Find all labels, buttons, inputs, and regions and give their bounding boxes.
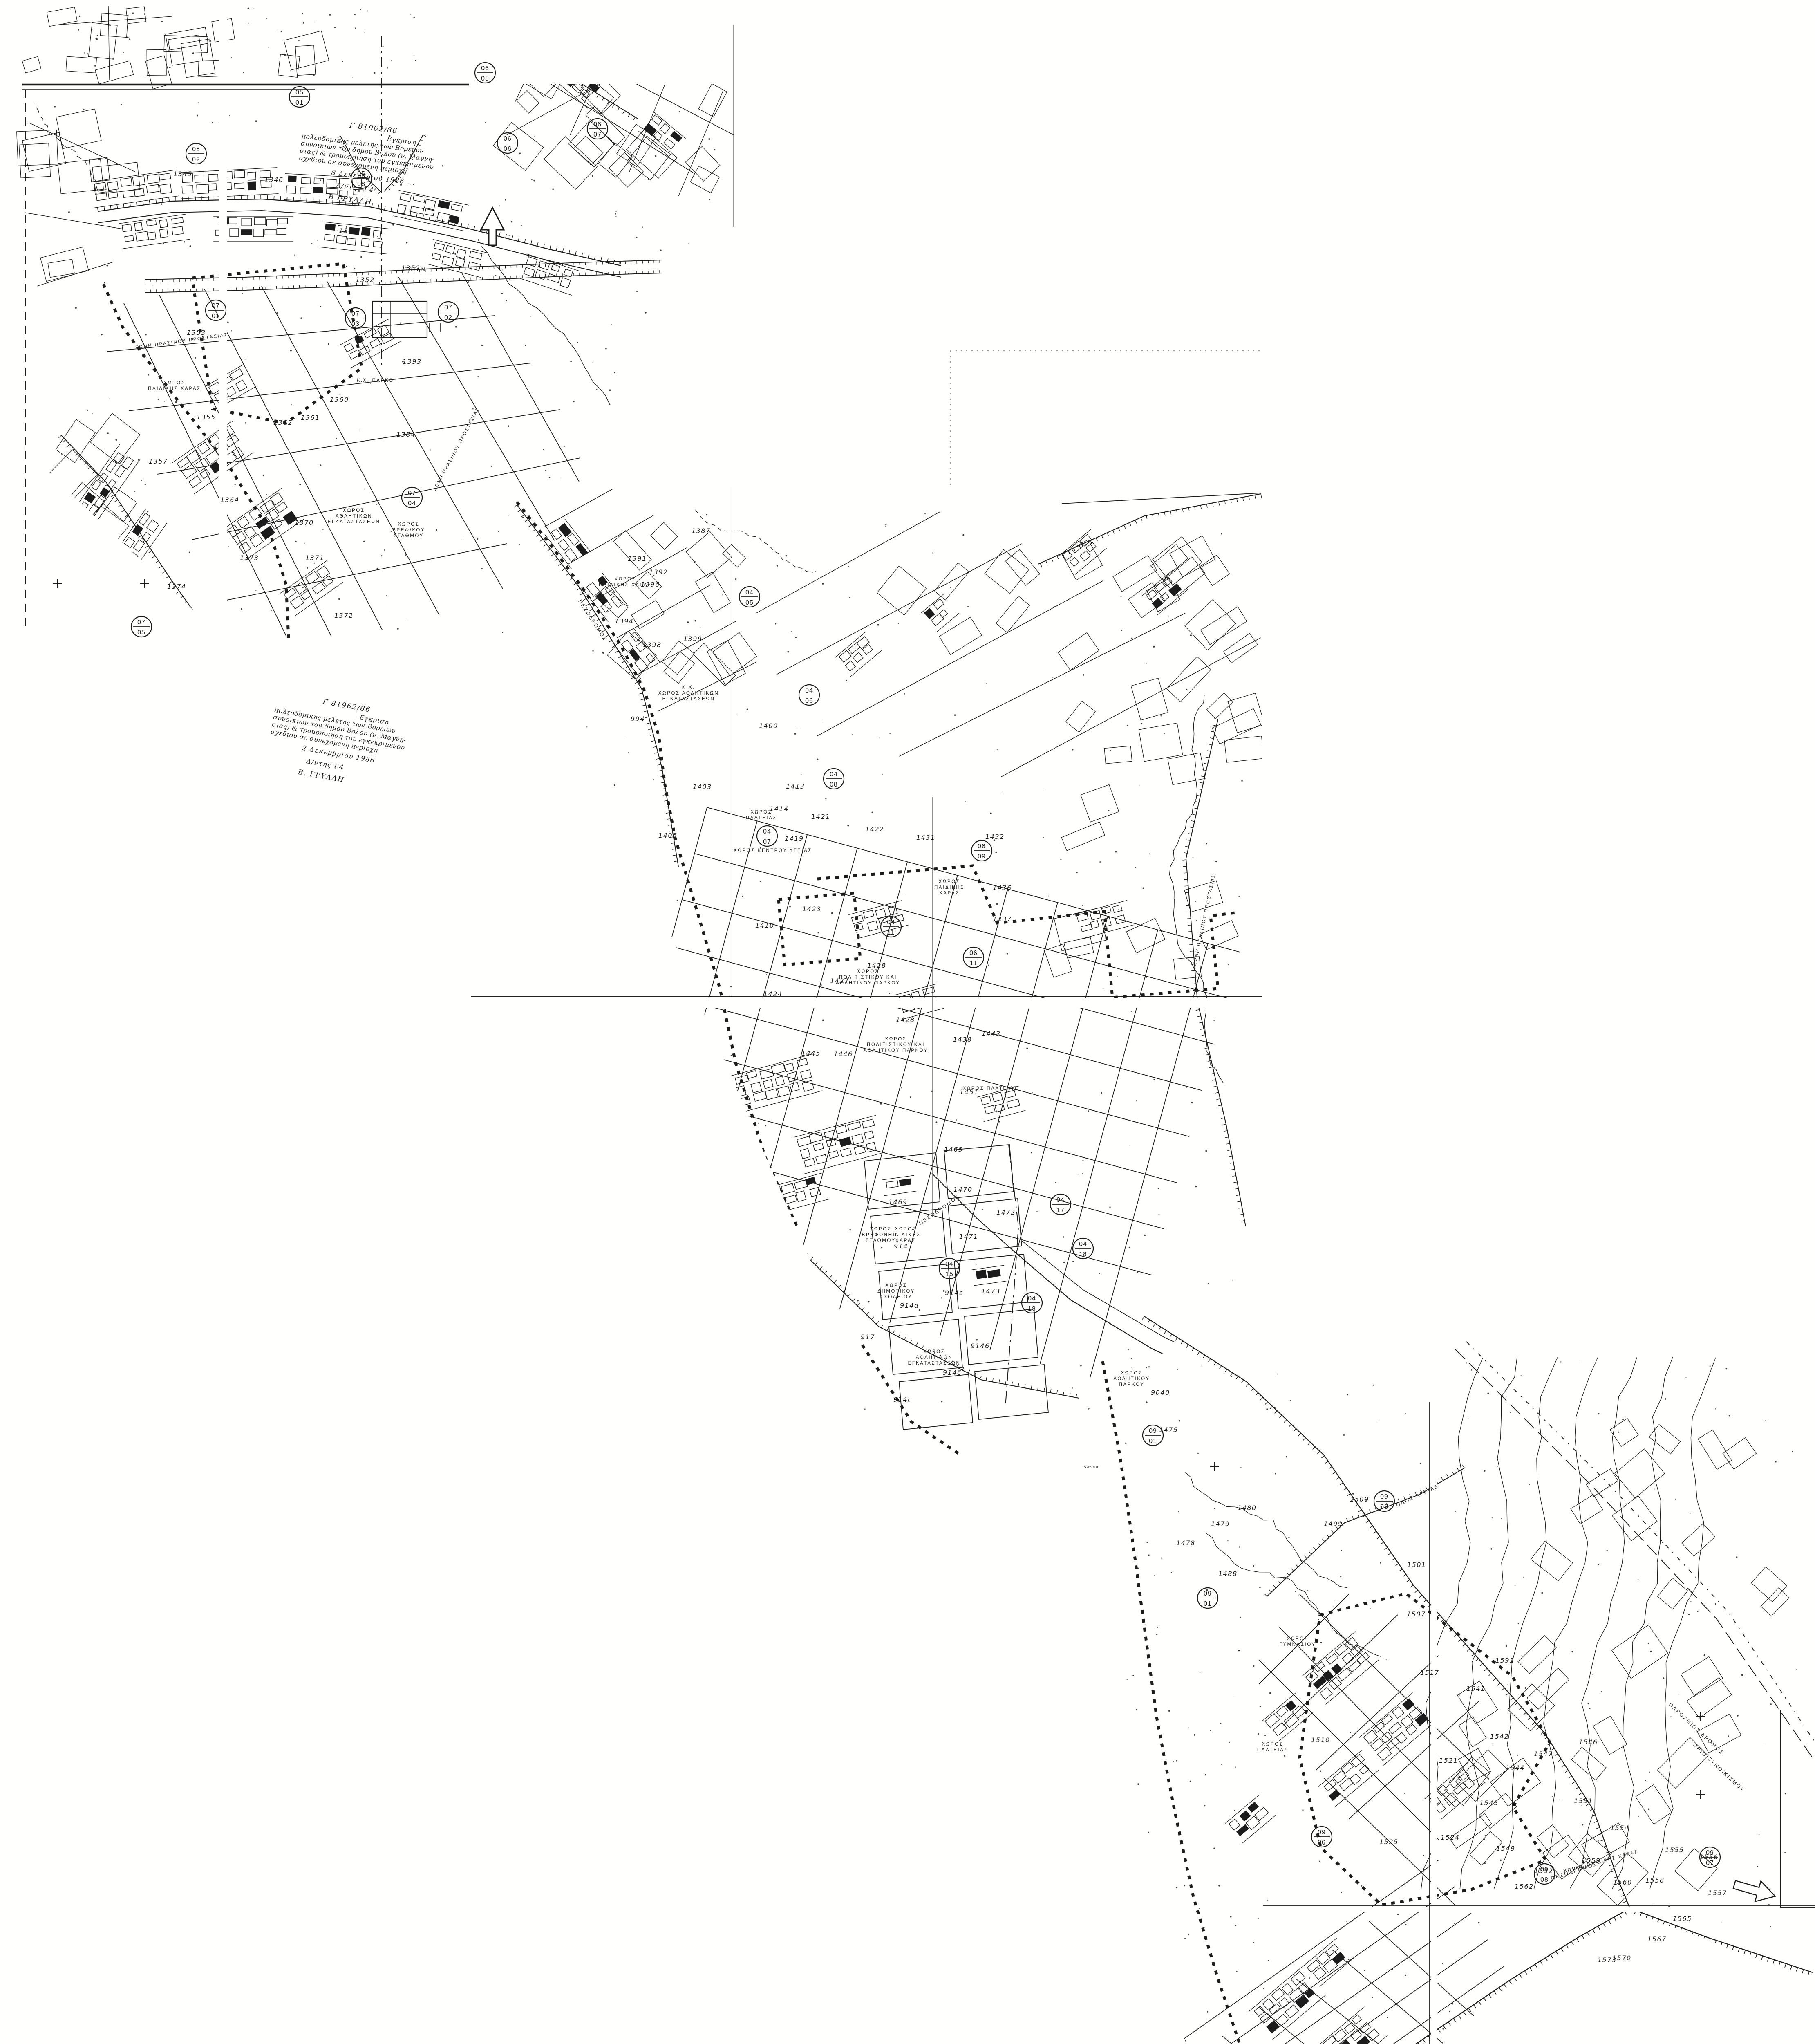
site-designation-label: ΧΩΡΟΣ (751, 810, 772, 815)
sheet-number-top: 07 (444, 304, 452, 311)
block-number-label: 1549 (1496, 1845, 1515, 1852)
sheet-number-top: 09 (1706, 1849, 1714, 1856)
site-designation-label: ΕΓΚΑΤΑΣΤΑΣΕΩΝ (662, 697, 715, 702)
map-cluster-bottom (1103, 1316, 1815, 2044)
site-designation-label: ΠΛΑΤΕΙΑΣ (746, 816, 777, 820)
sheet-number-bottom: 05 (745, 599, 754, 606)
building-block-patch (1303, 1938, 1354, 1986)
north-arrow-icon (481, 208, 504, 245)
block-number-label: 1400 (759, 722, 778, 730)
building-block-patch (835, 632, 882, 677)
block-number-label: 1405 (658, 831, 678, 839)
site-designation-label: ΧΩΡΟΣ (939, 879, 960, 884)
handwritten-parcel-number: 914ζ (943, 1369, 961, 1376)
handwritten-parcel-number: 914ι (893, 1396, 911, 1403)
site-designation-label: ΧΩΡΟΣ (1262, 1742, 1284, 1747)
sheet-index-circle: 0908 (1534, 1864, 1555, 1884)
site-designation-label: ΧΩΡΟΣ (1287, 1636, 1309, 1641)
block-number-label: 1544 (1506, 1764, 1525, 1772)
block-number-label: 1470 (953, 1186, 973, 1193)
block-number-label: 1414 (770, 805, 789, 813)
site-designation-label: ΧΩΡΟΣ (1121, 1371, 1143, 1376)
block-number-label: 1567 (1647, 1935, 1667, 1943)
sheet-index-circle: 0408 (824, 769, 844, 789)
site-designation-label: Κ.Χ. (682, 685, 695, 690)
block-number-label: 1428 (867, 961, 886, 969)
site-designation-label: ΒΡΕΦΟΝΗΠ. (862, 1233, 900, 1237)
sheet-number-top: 06 (504, 135, 512, 142)
building-block-patch (921, 594, 959, 632)
block-number-label: 1394 (615, 617, 634, 625)
building-block-patch (545, 519, 591, 569)
sheet-seam-lines (22, 0, 1815, 2044)
sheet-index-circle: 0705 (131, 616, 152, 637)
sheet-index-circle: 0607 (587, 119, 608, 139)
building-block-patch (1249, 1967, 1326, 2040)
block-number-label: 1471 (959, 1233, 978, 1240)
sheet-number-top: 09 (1149, 1428, 1157, 1434)
sheet-number-top: 04 (830, 771, 838, 778)
block-number-label: 1431 (916, 834, 935, 841)
site-designation-label: ΠΑΙΔΙΚΗΣ ΧΑΡΑΣ (599, 583, 652, 587)
block-number-label: 1423 (802, 905, 821, 913)
sheet-seam-gap (1431, 1402, 1437, 2044)
handwritten-parcel-number: 9146 (971, 1342, 990, 1350)
site-designation-label: ΧΑΡΑΣ (939, 891, 960, 896)
sheet-index-circle: 0903 (1374, 1491, 1394, 1511)
map-cluster-topleft (17, 11, 734, 638)
site-designation-label: ΕΓΚΑΤΑΣΤΑΣΕΩΝ (328, 520, 380, 524)
block-number-label: 1472 (996, 1208, 1016, 1216)
building-block-patch (107, 509, 167, 579)
block-number-label: 1419 (785, 835, 804, 843)
map-cluster-middle (514, 486, 1404, 1488)
sheet-index-circle: 0418 (1073, 1238, 1093, 1259)
sheet-index-circle: 0703 (345, 308, 366, 328)
block-number-label: 1393 (403, 358, 422, 365)
block-number-label: 1551 (1574, 1797, 1593, 1805)
block-number-label: 1371 (305, 554, 325, 562)
block-number-label: 1373 (240, 554, 259, 562)
site-designation-label: ΧΩΡΟΣ (885, 1037, 907, 1042)
building-block-patch (1318, 1750, 1379, 1806)
sheet-number-bottom: 07 (1706, 1860, 1714, 1867)
sheet-number-top: 07 (212, 303, 220, 309)
block-number-label: 1360 (330, 396, 349, 403)
block-number-label: 1370 (295, 519, 314, 527)
building-block-patch (731, 1054, 823, 1113)
sheet-number-bottom: 06 (504, 146, 512, 152)
site-designation-label: ΠΟΛΙΤΙΣΤΙΚΟΥ ΚΑΙ (839, 975, 897, 980)
sheet-number-top: 04 (945, 1261, 953, 1268)
sheet-index-circle: 0906 (1311, 1827, 1332, 1847)
building-block-patch (1262, 1692, 1313, 1741)
block-number-label: 1521 (1439, 1757, 1458, 1764)
site-designation-label: ΑΘΛΗΤΙΚΟΥ ΠΑΡΚΟΥ (836, 981, 900, 986)
site-designation-label: ΧΩΡΟΣ (615, 577, 636, 582)
site-designation-label: ΧΩΡΟΣ (886, 1283, 907, 1288)
block-number-label: 1392 (649, 568, 668, 576)
block-number-label: 1391 (628, 555, 647, 563)
sheet-number-top: 05 (192, 146, 200, 153)
block-number-label: 1524 (1441, 1833, 1460, 1841)
sheet-index-circle: 0901 (1197, 1588, 1218, 1608)
block-number-label: 1374 (167, 583, 186, 590)
sheet-number-bottom: 08 (1540, 1876, 1549, 1883)
site-designation-label: ΑΘΛΗΤΙΚΟΥ (1113, 1376, 1150, 1381)
sheet-number-bottom: 04 (408, 500, 416, 507)
site-designation-label: ΣΤΑΘΜΟΥ (866, 1238, 896, 1243)
block-number-label: 1345 (173, 170, 192, 178)
building-block-patch (848, 900, 909, 939)
site-designation-label: ΒΡΕΦ/ΚΟΥ (392, 528, 425, 533)
approval-note-top: Γ 81962/86Εγκρισηπολεοδομικης μελετης τω… (294, 116, 438, 213)
block-number-label: 1355 (197, 413, 216, 421)
sheet-number-bottom: 11 (887, 929, 895, 936)
block-number-label: 1517 (1420, 1669, 1439, 1676)
block-number-label: 1443 (982, 1030, 1001, 1038)
sheet-number-bottom: 01 (212, 313, 220, 320)
sheet-number-bottom: 17 (1056, 1207, 1065, 1214)
sheet-index-circle: 0406 (799, 685, 819, 705)
block-number-label: 1372 (334, 612, 354, 619)
sheet-number-bottom: 06 (1318, 1839, 1326, 1846)
sheet-index-circle: 0606 (497, 133, 518, 153)
block-number-label: 1399 (683, 635, 703, 643)
block-number-label: 1554 (1610, 1824, 1629, 1832)
sheet-index-circle: 0501 (289, 87, 310, 107)
sheet-number-top: 06 (969, 950, 978, 957)
sheet-number-top: 09 (1380, 1493, 1388, 1500)
approval-reference: Γ 81962/86 (349, 121, 398, 135)
site-designation-label: ΧΩΡΟΣ (164, 381, 186, 385)
building-block-patch (614, 629, 661, 679)
road-continuation-arrow-icon (1732, 1874, 1778, 1907)
block-number-label: 1545 (1479, 1799, 1499, 1807)
sheet-index-circle: 0405 (739, 587, 760, 607)
site-designation-label: ΣΤΑΘΜΟΥ (394, 533, 424, 538)
block-number-label: 1384 (396, 430, 416, 438)
block-number-label: 1547 (1534, 1750, 1553, 1758)
site-designation-label: ΧΩΡΟΣ (857, 969, 879, 974)
sheet-number-bottom: 02 (192, 156, 200, 163)
building-block-patch (765, 1173, 829, 1214)
site-designation-label: ΠΟΛΙΤΙΣΤΙΚΟΥ ΚΑΙ (867, 1042, 925, 1047)
block-number-label: 1469 (888, 1198, 908, 1206)
site-designation-label: ΠΑΙΔΙΚΗΣ ΧΑΡΑΣ (148, 386, 201, 391)
block-number-label: 1364 (220, 496, 239, 504)
block-number-label: 1555 (1665, 1846, 1684, 1854)
building-block-patch (557, 63, 604, 108)
sheet-index-circle: 0907 (1700, 1847, 1720, 1867)
sheet-number-top: 06 (481, 65, 489, 72)
block-number-label: 1410 (755, 921, 774, 929)
sheet-number-top: 04 (1079, 1241, 1087, 1248)
block-number-label: 1478 (1176, 1539, 1195, 1547)
site-designation-label: ΧΩΡΟΣ (895, 1227, 917, 1232)
site-designation-label: Κ.Χ. ΠΑΡΚΟ (357, 378, 394, 383)
sheet-number-top: 09 (1318, 1829, 1326, 1836)
block-number-label: 1525 (1379, 1838, 1399, 1846)
block-number-label: 1465 (944, 1145, 963, 1153)
block-number-label: 1362 (273, 419, 293, 426)
block-number-label: 1398 (642, 641, 662, 649)
sheet-index-circle: 0417 (1050, 1194, 1071, 1215)
sheet-number-bottom: 07 (763, 838, 771, 845)
sheet-number-bottom: 01 (1204, 1600, 1212, 1607)
block-number-label: 1501 (1407, 1561, 1426, 1569)
sheet-number-top: 04 (1056, 1197, 1065, 1204)
block-number-label: 1445 (801, 1049, 821, 1057)
block-number-label: 1499 (1324, 1520, 1343, 1528)
sheet-number-bottom: 08 (830, 781, 838, 788)
site-designation-label: ΔΗΜΟΤΙΚΟΥ (877, 1289, 915, 1294)
block-number-label: 1562 (1515, 1883, 1534, 1890)
sheet-number-bottom: 11 (970, 960, 978, 967)
approval-note-mid: Γ 81962/86Εγκρισηπολεοδομικης μελετης τω… (264, 690, 411, 793)
block-number-label: 1403 (693, 783, 712, 791)
sheet-seam-gap (219, 0, 227, 638)
sheet-number-top: 06 (593, 121, 602, 128)
handwritten-parcel-number: 914α (900, 1302, 919, 1309)
block-number-label: 1347 (339, 227, 358, 235)
site-designation-label: ΕΓΚΑΤΑΣΤΑΣΕΩΝ (908, 1361, 961, 1366)
scanned-map-page: 1345134613471352135213531355135713601361… (0, 0, 1815, 2044)
block-number-label: 1565 (1673, 1915, 1692, 1923)
site-designation-label: ΠΑΡΚΟΥ (1119, 1382, 1145, 1387)
grid-coordinate-label: 595300 (1084, 1465, 1100, 1470)
site-designation-label: ΧΩΡΟΣ (924, 1349, 945, 1354)
site-designation-label: ΧΩΡΟΣ ΠΛΑΤΕΙΑΣ (962, 1086, 1018, 1091)
block-number-label: 1352 (356, 276, 375, 284)
sheet-number-top: 05 (295, 89, 304, 96)
site-designation-label: ΧΩΡΟΣ (870, 1227, 892, 1232)
site-designation-label: ΖΩΝΗ ΠΡΑΣΙΝΟΥ ΠΡΟΣΤΑΣΙΑΣ (432, 406, 481, 491)
sheet-index-circle: 0418 (1022, 1293, 1042, 1313)
sheet-number-bottom: 15 (945, 1271, 953, 1278)
block-number-label: 1473 (981, 1287, 1000, 1295)
sheet-number-top: 04 (763, 828, 771, 835)
sheet-number-bottom: 07 (593, 131, 602, 138)
approval-signature: Β. ΓΡΥΛΛΗ (297, 768, 345, 784)
site-designation-label: ΑΘΛΗΤΙΚΩΝ (916, 1355, 953, 1360)
sheet-seam-gap (734, 25, 740, 491)
sheet-index-circle: 0704 (402, 487, 422, 508)
block-number-label: 1421 (811, 813, 830, 820)
block-number-label: 1387 (692, 527, 711, 535)
block-number-label: 1438 (953, 1035, 972, 1043)
block-number-label: 1541 (1466, 1685, 1486, 1692)
block-number-label: 1413 (786, 782, 805, 790)
sheet-index-circle: 0415 (939, 1258, 960, 1279)
block-number-label: 1432 (985, 833, 1005, 840)
block-number-label: 1446 (834, 1050, 853, 1058)
sheet-index-circle: 0502 (186, 143, 206, 164)
sheet-number-top: 06 (978, 843, 986, 850)
site-designation-label: ΧΩΡΟΣ ΑΘΛΗΤΙΚΩΝ (658, 691, 719, 696)
sheet-index-circle: 0609 (971, 840, 992, 861)
handwritten-parcel-number: 914ε (945, 1289, 963, 1297)
block-number-label: 1353 (187, 329, 206, 336)
block-number-label: 1558 (1645, 1876, 1665, 1884)
handwritten-parcel-number: 917 (861, 1333, 875, 1341)
sheet-number-top: 04 (1028, 1295, 1036, 1302)
building-block-patch (1359, 1693, 1437, 1766)
sheet-number-bottom: 01 (1149, 1438, 1157, 1445)
block-number-label: 1560 (1613, 1878, 1632, 1886)
sheet-number-bottom: 18 (1028, 1305, 1036, 1312)
sheet-index-circle: 0901 (1143, 1425, 1163, 1446)
sheet-seam-gap (1263, 1907, 1782, 1912)
sheet-index-circle: 0701 (206, 300, 226, 320)
sheet-index-circle: 0611 (963, 947, 984, 968)
site-designation-label: ΑΘΛΗΤΙΚΟΥ ΠΑΡΚΟΥ (864, 1048, 928, 1053)
sheet-number-bottom: 06 (805, 697, 813, 704)
sheet-number-bottom: 03 (1380, 1504, 1388, 1511)
site-designation-label: ΓΥΜΝΑΣΙΟΥ (1279, 1642, 1316, 1647)
block-number-label: 1361 (301, 414, 320, 421)
sheet-number-bottom: 03 (351, 320, 360, 327)
site-designation-label: ΠΟΤΑΜΙ (404, 267, 428, 272)
block-number-label: 1500 (1350, 1495, 1369, 1503)
approval-signer-role: Δ/ντης Γ4 (335, 182, 375, 194)
map-labels: 1345134613471352135213531355135713601361… (53, 63, 1778, 1964)
sheet-number-top: 07 (137, 619, 145, 626)
block-number-label: 1346 (264, 176, 284, 184)
building-block-patch (977, 1086, 1025, 1121)
site-designation-label: ΧΩΡΟΣ (398, 522, 420, 527)
sheet-seam-gap (471, 998, 1262, 1008)
sheet-number-top: 04 (745, 589, 754, 596)
site-designation-label: ΧΩΡΟΣ (343, 508, 365, 513)
sheet-number-top: 07 (408, 490, 416, 497)
building-block-patch (519, 254, 580, 296)
sheet-index-circle: 0605 (475, 63, 495, 83)
building-block-patch (1225, 1795, 1276, 1843)
handwritten-parcel-number: 9040 (1151, 1389, 1170, 1396)
building-block-patch (119, 214, 190, 249)
building-block-patch (972, 1265, 1007, 1286)
sheet-number-bottom: 05 (481, 75, 489, 82)
block-number-label: 1480 (1238, 1504, 1257, 1512)
building-block-patch (339, 319, 400, 368)
building-block-patch (427, 239, 487, 277)
sheet-number-top: 09 (1540, 1866, 1549, 1873)
sheet-number-top: 04 (887, 919, 895, 926)
building-block-patch (1310, 2008, 1388, 2044)
block-number-label: 1507 (1407, 1610, 1426, 1618)
road-name-label: ΠΕΖΟΔΡΟΜΟΣ (1550, 1861, 1598, 1881)
site-designation-label: ΠΛΑΤΕΙΑΣ (1257, 1748, 1288, 1753)
sheet-number-bottom: 05 (137, 629, 145, 636)
sheet-number-bottom: 01 (295, 99, 304, 106)
block-number-label: 1591 (1495, 1656, 1515, 1664)
block-number-label: 1510 (1311, 1736, 1330, 1744)
block-number-label: 1424 (763, 990, 783, 998)
handwritten-parcel-number: 994 (631, 715, 645, 723)
block-number-label: 1436 (993, 884, 1012, 892)
site-designation-label: ΧΩΡΟΣ ΚΕΝΤΡΟΥ ΥΓΕΙΑΣ (734, 848, 812, 853)
building-block-patch (794, 1115, 886, 1174)
sheet-index-circle: 0407 (757, 826, 777, 846)
building-block-patch (638, 112, 685, 157)
block-number-label: 1428 (896, 1016, 915, 1024)
site-designation-label: ΖΩΝΗ ΠΡΑΣΙΝΟΥ ΠΡΟΣΤΑΣΙΑΣ (1192, 873, 1216, 966)
sheet-number-top: 07 (351, 310, 360, 317)
handwritten-parcel-number: 914 (894, 1242, 908, 1250)
sheet-number-top: 04 (805, 687, 813, 694)
approval-signer-role: Δ/ντης Γ4 (305, 757, 345, 771)
site-designation-label: ΣΧΟΛΕΙΟΥ (880, 1295, 912, 1300)
block-number-label: 1542 (1490, 1732, 1509, 1740)
sheet-number-bottom: 09 (978, 853, 986, 860)
sheet-number-bottom: 02 (444, 314, 452, 321)
sheet-number-top: 09 (1204, 1590, 1212, 1597)
sheet-index-circle: 0702 (438, 302, 459, 322)
sheet-number-bottom: 18 (1079, 1251, 1087, 1258)
sheet-index-circle: 0411 (881, 917, 901, 937)
block-number-label: 1437 (993, 915, 1012, 923)
approval-reference: Γ 81962/86 (322, 698, 371, 714)
block-number-label: 1357 (149, 457, 168, 465)
handwritten-approval-notes: Γ 81962/86Εγκρισηπολεοδομικης μελετης τω… (264, 116, 438, 793)
block-number-label: 1557 (1708, 1889, 1727, 1897)
building-block-patch (1073, 900, 1133, 939)
block-number-label: 1488 (1218, 1570, 1238, 1578)
building-block-patch (179, 168, 278, 199)
block-number-label: 1573 (1598, 1956, 1617, 1964)
block-number-label: 1546 (1579, 1738, 1598, 1746)
site-designation-label: ΧΑΡΑΣ (895, 1238, 916, 1243)
cadastral-map-scan: 1345134613471352135213531355135713601361… (0, 0, 1815, 2044)
site-designation-label: ΠΑΙΔΙΚΗΣ (934, 885, 965, 890)
building-block-patch (882, 1175, 917, 1196)
block-number-label: 1422 (865, 825, 884, 833)
block-number-label: 1479 (1211, 1520, 1230, 1528)
site-designation-label: ΑΘΛΗΤΙΚΩΝ (336, 514, 372, 519)
